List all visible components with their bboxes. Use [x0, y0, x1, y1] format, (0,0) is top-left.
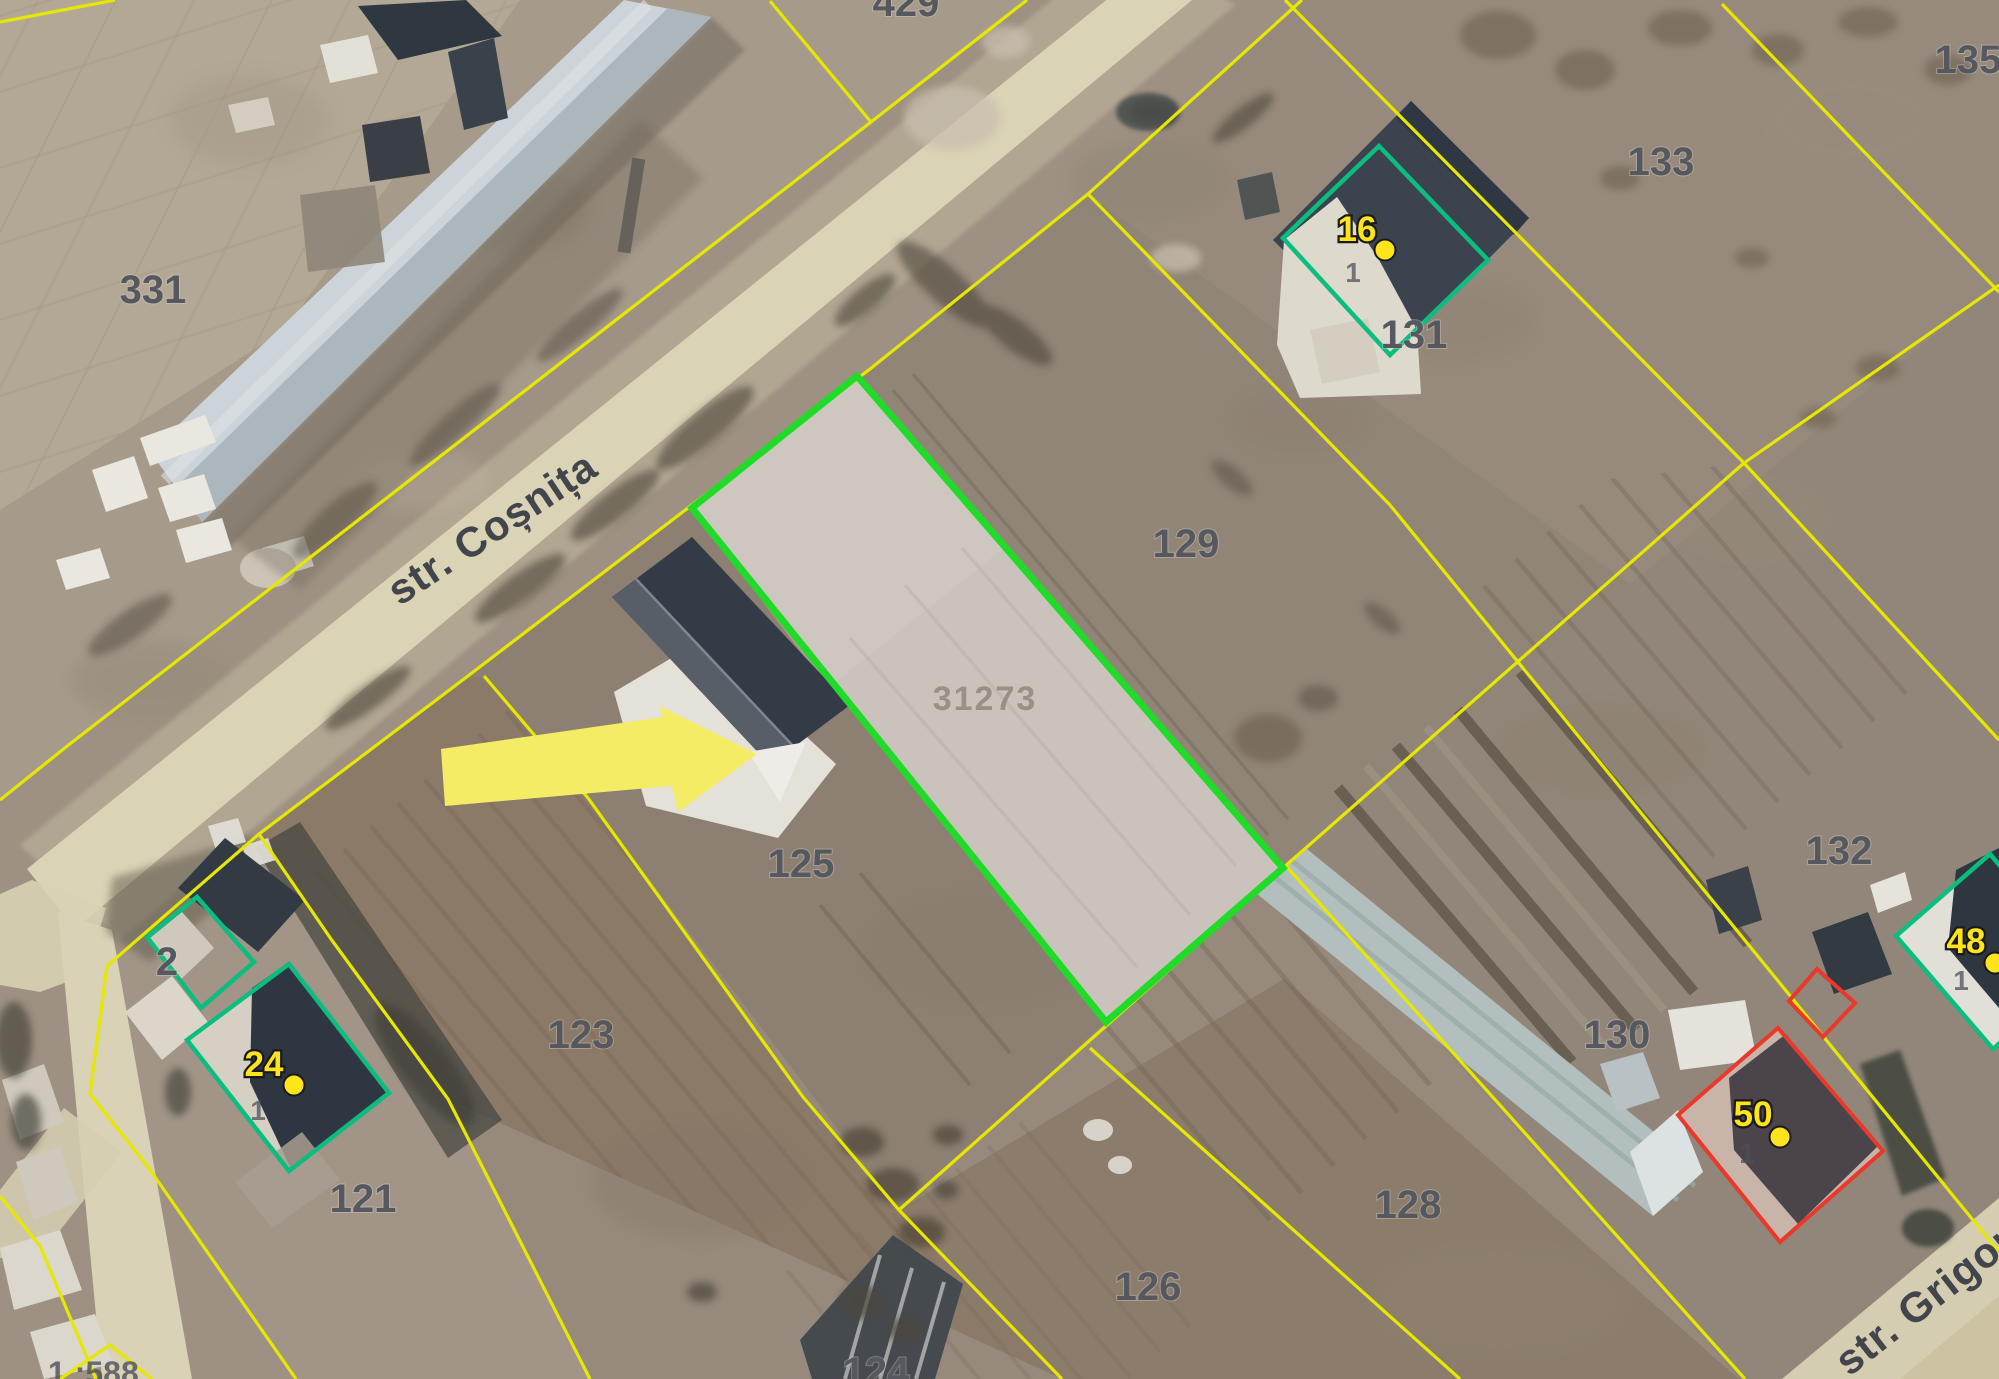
svg-text:1: 1	[1739, 1138, 1755, 1169]
svg-text:50: 50	[1734, 1095, 1773, 1134]
svg-text:133: 133	[1628, 140, 1695, 184]
svg-text:135: 135	[1935, 38, 1999, 82]
svg-text:129: 129	[1153, 522, 1220, 566]
svg-text:24: 24	[245, 1045, 284, 1084]
svg-text:1: 1	[1345, 257, 1361, 288]
svg-text:31273: 31273	[933, 680, 1038, 718]
svg-text:429: 429	[873, 0, 940, 25]
svg-text:124: 124	[843, 1350, 910, 1379]
svg-text:132: 132	[1806, 829, 1873, 873]
svg-text:123: 123	[548, 1013, 615, 1057]
svg-text:1: 1	[250, 1095, 266, 1126]
svg-text:128: 128	[1375, 1183, 1442, 1227]
svg-text:16: 16	[1338, 210, 1377, 249]
svg-text:1: 1	[1953, 965, 1969, 996]
svg-text:121: 121	[330, 1177, 397, 1221]
svg-text:2: 2	[156, 940, 178, 984]
svg-text:331: 331	[120, 268, 187, 312]
svg-text:1 :588: 1 :588	[48, 1355, 139, 1379]
svg-text:125: 125	[768, 842, 835, 886]
svg-text:131: 131	[1381, 313, 1448, 357]
svg-text:126: 126	[1115, 1265, 1182, 1309]
svg-text:48: 48	[1947, 922, 1986, 961]
svg-text:130: 130	[1584, 1013, 1651, 1057]
